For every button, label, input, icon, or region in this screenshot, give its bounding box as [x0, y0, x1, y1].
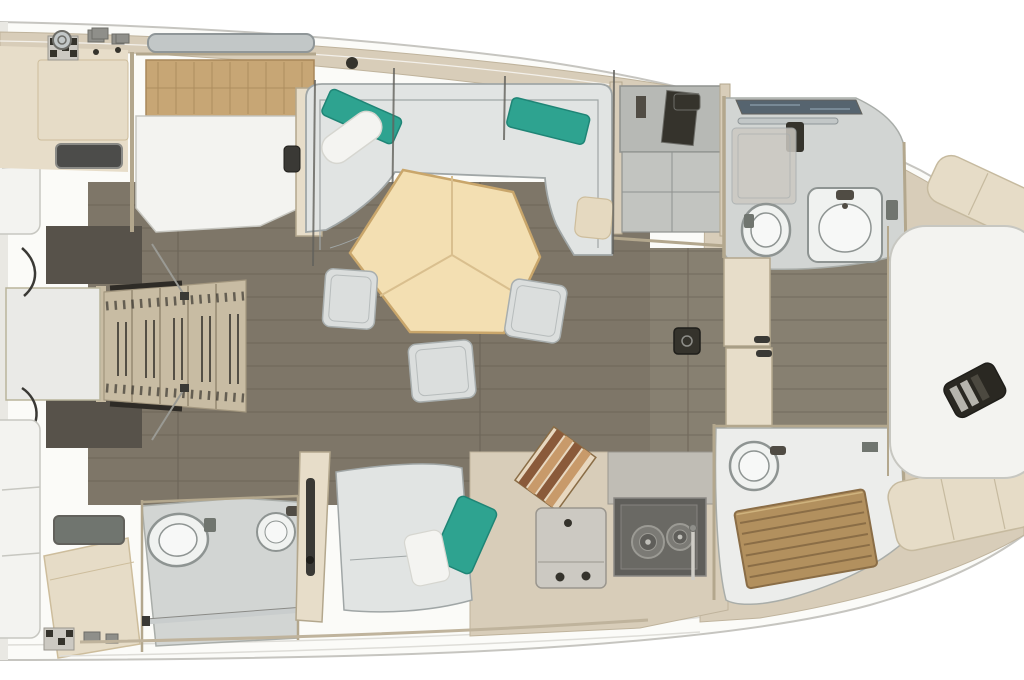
sink-basin: [265, 521, 287, 543]
sink-faucet: [770, 446, 786, 455]
toilet-hinge: [744, 214, 754, 228]
shower-door: [726, 348, 772, 436]
hull-window-strip: [736, 100, 862, 114]
stool-left: [322, 268, 378, 329]
wall-fixture: [862, 442, 878, 452]
nav-cabinet: [610, 82, 730, 246]
vanity-top: [38, 60, 128, 140]
sink-basin: [739, 451, 769, 481]
mast-step: [674, 328, 700, 354]
sink-basin: [819, 204, 871, 252]
faucet-spout: [842, 203, 848, 209]
rail-end: [142, 616, 150, 626]
companionway-landing: [6, 288, 100, 400]
port-aft-head: [0, 30, 128, 172]
port-aft-cabin: [132, 34, 322, 236]
galley-worktop: [608, 452, 728, 504]
deck-fitting-lower: [180, 384, 189, 392]
door-handle: [756, 350, 772, 357]
shower-tray: [732, 128, 796, 204]
head-door: [724, 258, 770, 346]
sink-knob: [556, 573, 565, 582]
door-handle: [284, 146, 300, 172]
toilet-hinge: [204, 518, 216, 532]
door-knob: [306, 556, 314, 564]
tan-seat-cushion: [574, 196, 614, 240]
drain-dot: [115, 47, 121, 53]
deck-fitting: [346, 57, 358, 69]
stair-recess-upper: [46, 226, 142, 284]
hull-window: [56, 144, 122, 168]
stool-right: [504, 278, 568, 344]
starboard-aft-berth-cushion: [0, 420, 40, 638]
sink-cover: [536, 508, 606, 588]
faucet-head: [690, 525, 697, 532]
drain-dot: [93, 49, 99, 55]
port-forward-head: [724, 96, 906, 269]
yacht-floor-plan-image: [0, 0, 1024, 680]
sink-faucet: [836, 190, 854, 200]
deck-block: [92, 28, 108, 39]
double-bed: [136, 116, 312, 232]
deck-hatch: [674, 94, 700, 110]
bow-berth: [890, 226, 1024, 478]
sink-knob: [564, 519, 572, 527]
floor-plan-canvas: [0, 0, 1024, 680]
deck-fitting-upper: [180, 292, 189, 300]
wall-fixture: [886, 200, 898, 220]
toilet-bowl: [751, 213, 781, 247]
headboard-panel: [54, 516, 124, 544]
winch: [53, 31, 71, 49]
cockpit-window-bar: [148, 34, 314, 52]
sink-knob: [582, 572, 591, 581]
small-instrument: [636, 96, 646, 118]
stool-bottom: [408, 339, 477, 402]
deck-block: [116, 34, 129, 43]
door-handle: [754, 336, 770, 343]
